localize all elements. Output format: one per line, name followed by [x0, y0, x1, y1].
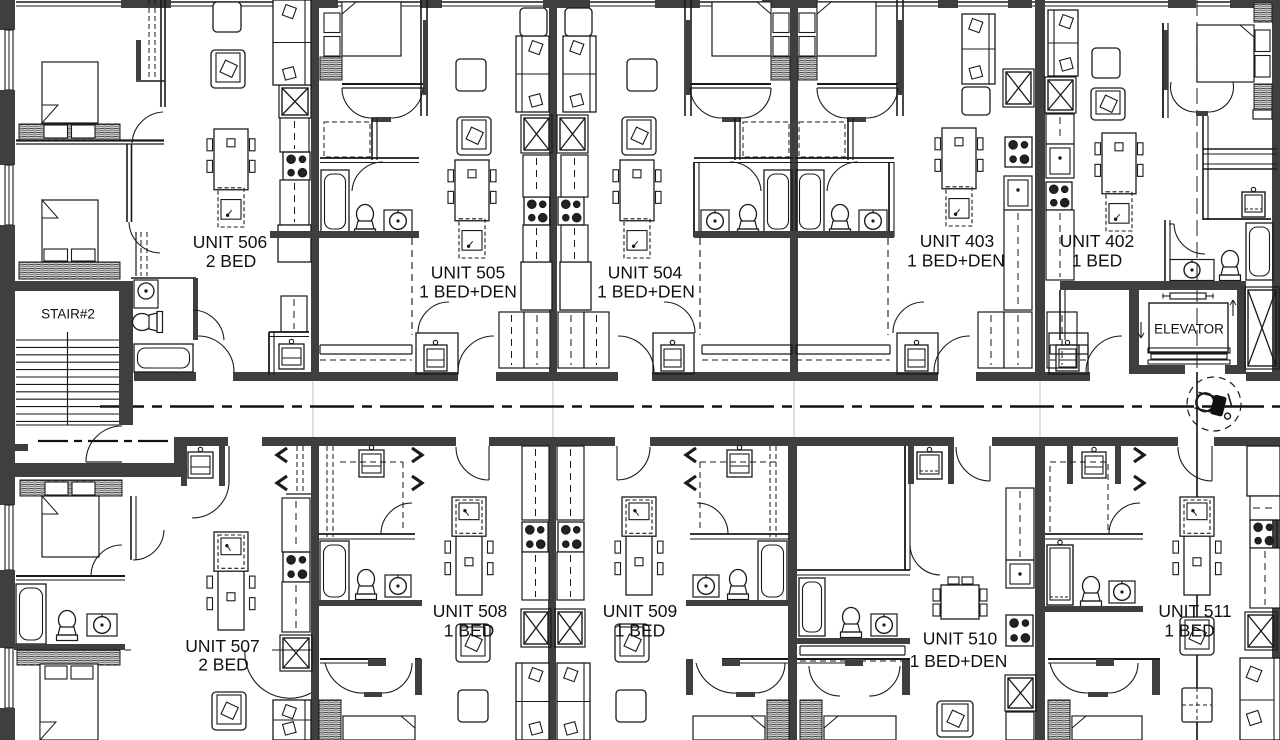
svg-text:1 BED+DEN: 1 BED+DEN [907, 251, 1005, 271]
svg-text:1 BED: 1 BED [444, 621, 495, 641]
svg-text:UNIT 510: UNIT 510 [923, 629, 998, 649]
svg-text:1 BED: 1 BED [1164, 621, 1215, 641]
svg-text:UNIT 505: UNIT 505 [431, 263, 506, 283]
svg-text:UNIT 506: UNIT 506 [193, 232, 268, 252]
svg-text:ELEVATOR: ELEVATOR [1154, 322, 1224, 337]
svg-text:1 BED+DEN: 1 BED+DEN [597, 282, 695, 302]
svg-text:STAIR#2: STAIR#2 [41, 307, 95, 322]
svg-text:1 BED+DEN: 1 BED+DEN [419, 282, 517, 302]
svg-text:1 BED+DEN: 1 BED+DEN [910, 651, 1008, 671]
svg-text:UNIT 403: UNIT 403 [920, 231, 995, 251]
svg-text:2 BED: 2 BED [206, 251, 257, 271]
svg-text:1 BED: 1 BED [1072, 251, 1123, 271]
svg-text:UNIT 504: UNIT 504 [608, 263, 683, 283]
svg-text:UNIT 402: UNIT 402 [1060, 231, 1135, 251]
svg-text:UNIT 511: UNIT 511 [1158, 601, 1231, 621]
svg-text:UNIT 508: UNIT 508 [433, 601, 508, 621]
svg-text:1 BED: 1 BED [615, 621, 666, 641]
svg-text:UNIT 507: UNIT 507 [185, 636, 260, 656]
svg-text:2 BED: 2 BED [198, 655, 249, 675]
svg-text:UNIT 509: UNIT 509 [603, 601, 678, 621]
